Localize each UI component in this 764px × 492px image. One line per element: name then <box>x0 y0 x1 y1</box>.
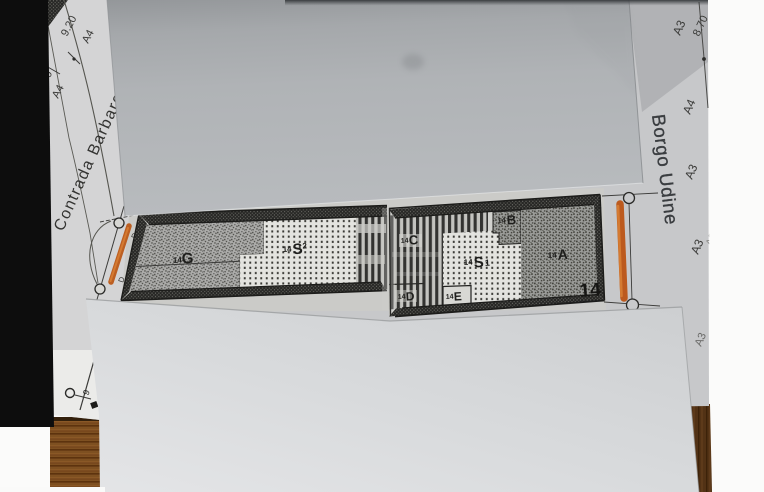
svg-text:14: 14 <box>401 238 409 245</box>
svg-text:14: 14 <box>498 218 506 225</box>
svg-text:14: 14 <box>548 251 558 260</box>
svg-text:C: C <box>408 232 419 248</box>
svg-text:E: E <box>453 289 462 303</box>
svg-text:D: D <box>405 289 415 303</box>
svg-text:14: 14 <box>398 294 406 301</box>
svg-text:14: 14 <box>446 294 454 301</box>
svg-text:B: B <box>506 212 516 227</box>
svg-text:G: G <box>181 250 194 268</box>
svg-text:S: S <box>473 254 484 272</box>
svg-text:A: A <box>557 246 568 263</box>
svg-text:14: 14 <box>579 280 602 302</box>
svg-text:14: 14 <box>282 244 292 254</box>
svg-text:14: 14 <box>464 258 474 267</box>
svg-text:1: 1 <box>485 258 491 268</box>
